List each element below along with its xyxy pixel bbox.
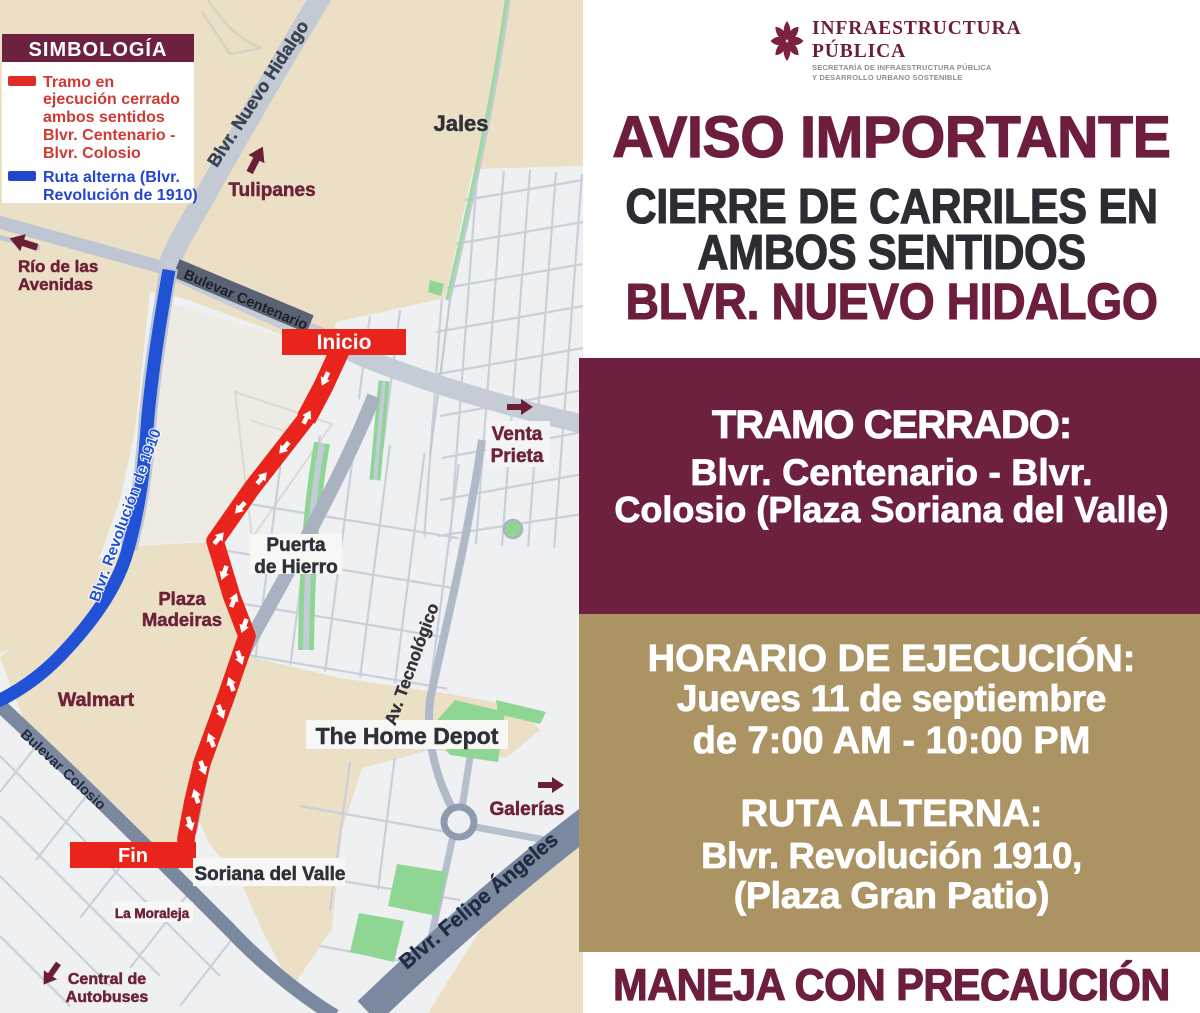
svg-text:Blvr. Colosio: Blvr. Colosio — [43, 145, 141, 162]
svg-text:Inicio: Inicio — [317, 331, 372, 354]
svg-text:Prieta: Prieta — [491, 446, 544, 467]
svg-text:Plaza: Plaza — [158, 588, 206, 609]
svg-text:Madeiras: Madeiras — [142, 609, 222, 630]
svg-text:Puerta: Puerta — [266, 535, 326, 556]
svg-text:ejecución cerrado: ejecución cerrado — [43, 91, 180, 108]
svg-text:ambos sentidos: ambos sentidos — [43, 109, 165, 126]
svg-text:SIMBOLOGÍA: SIMBOLOGÍA — [29, 38, 168, 61]
svg-text:Walmart: Walmart — [58, 689, 135, 711]
svg-text:Soriana del Valle: Soriana del Valle — [194, 864, 345, 885]
svg-text:The Home Depot: The Home Depot — [316, 723, 499, 749]
svg-text:Río de las: Río de las — [18, 257, 98, 276]
svg-text:Revolución de 1910): Revolución de 1910) — [43, 187, 198, 204]
svg-text:Ruta alterna (Blvr.: Ruta alterna (Blvr. — [43, 169, 180, 186]
svg-text:Galerías: Galerías — [490, 799, 565, 820]
svg-text:de Hierro: de Hierro — [254, 557, 337, 578]
svg-text:Central de: Central de — [68, 971, 146, 988]
svg-text:Avenidas: Avenidas — [18, 275, 93, 294]
svg-text:Venta: Venta — [492, 424, 543, 445]
svg-text:Tramo en: Tramo en — [43, 74, 114, 91]
svg-text:Tulipanes: Tulipanes — [228, 180, 315, 201]
svg-text:Blvr. Centenario -: Blvr. Centenario - — [43, 127, 175, 144]
svg-text:Fin: Fin — [118, 845, 148, 867]
svg-text:Jales: Jales — [433, 111, 488, 136]
svg-text:La Moraleja: La Moraleja — [115, 906, 190, 921]
svg-text:Autobuses: Autobuses — [66, 989, 149, 1006]
